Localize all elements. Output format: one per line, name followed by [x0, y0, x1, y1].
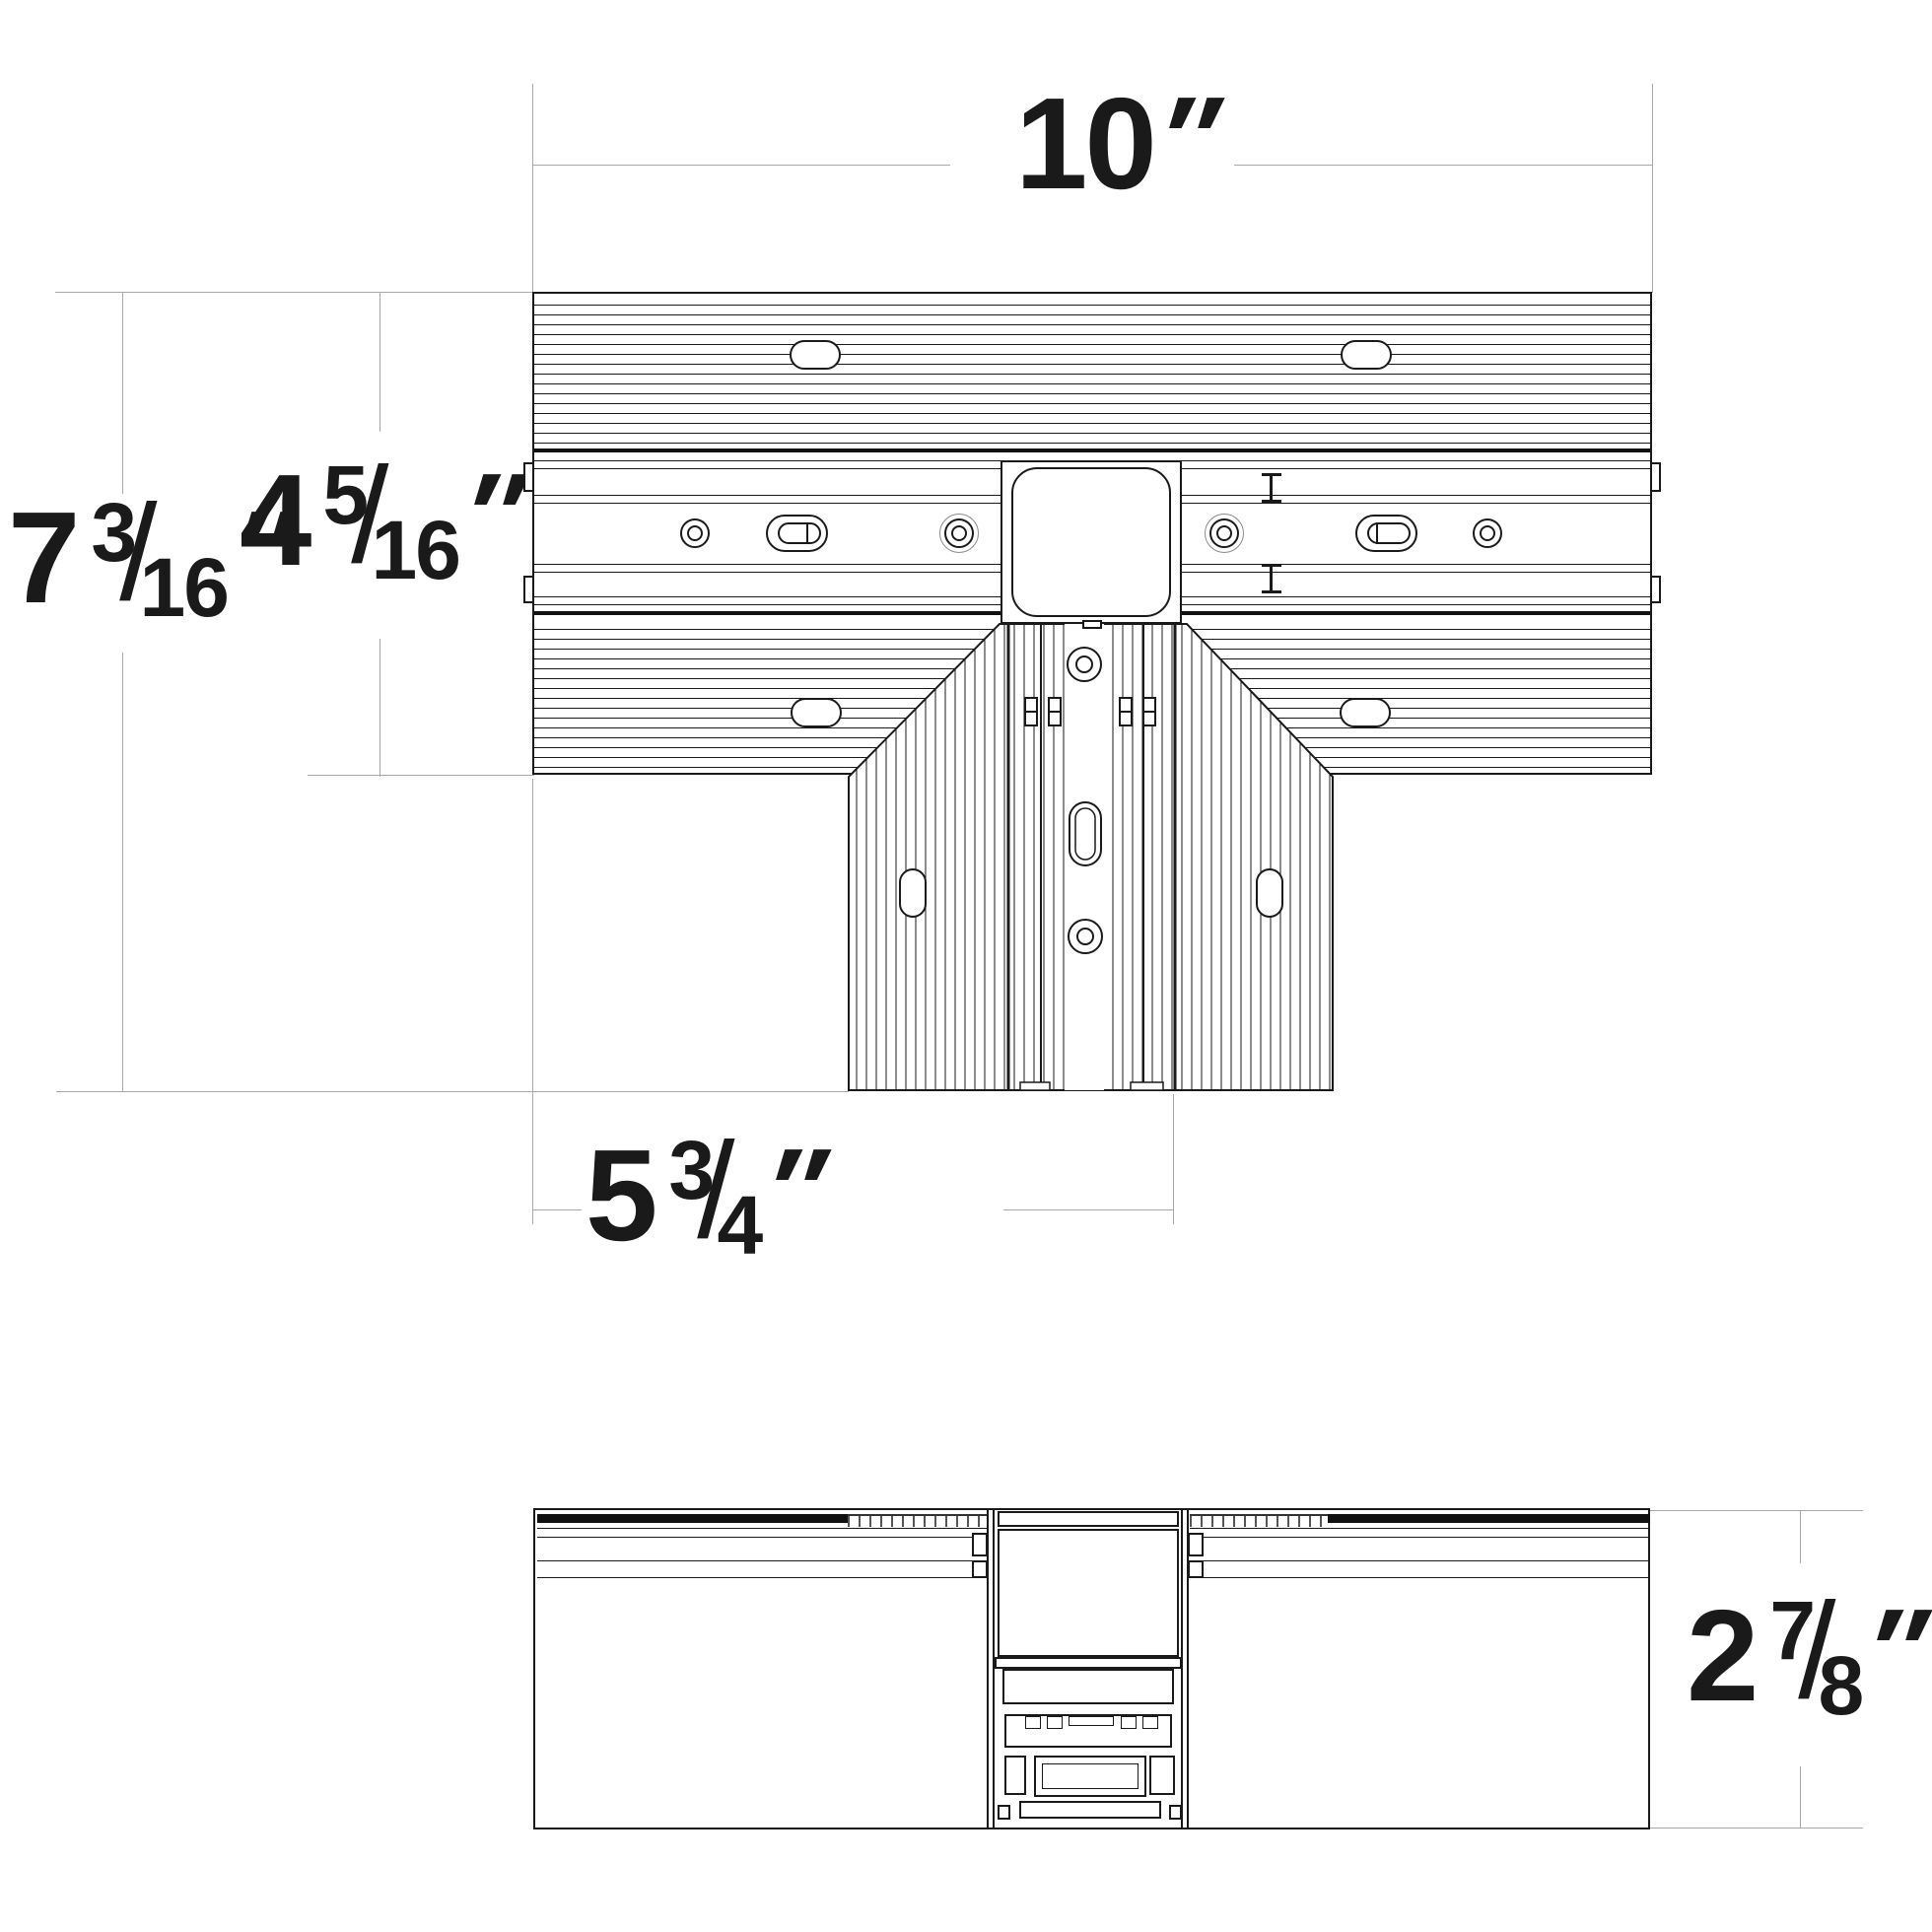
dim-section-fraction: 7 / 8	[1769, 1591, 1862, 1727]
dim-bardepth-ext-top	[55, 292, 532, 293]
section-lower-bracket	[1149, 1756, 1175, 1795]
dim-depth-fraction: 3 / 16	[91, 493, 228, 629]
mounting-slot	[790, 340, 841, 370]
plan-view-leg	[843, 621, 1341, 1096]
dim-leg-fraction: 3 / 4	[668, 1131, 761, 1267]
section-clip-block	[1188, 1560, 1204, 1578]
dim-leg-line-right	[1003, 1209, 1173, 1210]
dim-section-line-upper	[1800, 1510, 1801, 1563]
dim-section-unit: ″	[1859, 1591, 1932, 1711]
mounting-slot	[791, 698, 842, 727]
mounting-slot	[1341, 340, 1392, 370]
section-terminal-cap	[1121, 1716, 1137, 1729]
section-bottom-plate	[1019, 1801, 1161, 1819]
dim-width-unit: ″	[1151, 79, 1227, 199]
junction-box-opening	[1011, 467, 1171, 617]
section-rail-line	[537, 1560, 987, 1561]
junction-box-tab	[1082, 620, 1102, 629]
section-driver-housing	[998, 1529, 1179, 1657]
dim-width-ext-right	[1652, 84, 1653, 293]
section-terminal-cap	[1025, 1716, 1041, 1729]
leg-center-slot-inner	[1075, 808, 1095, 860]
leg-bottom-notch	[1020, 1082, 1050, 1090]
adjustment-slot-inner	[1367, 522, 1411, 544]
dim-bardepth-line-lower	[379, 639, 380, 777]
dim-section-whole: 2	[1687, 1591, 1756, 1721]
bar-band-divider-upper	[534, 448, 1650, 452]
section-clip-block	[972, 1560, 988, 1578]
section-top-black-strip	[1328, 1514, 1650, 1523]
dim-bardepth-fraction: 5 / 16	[322, 455, 459, 591]
section-tooth-strip	[848, 1514, 987, 1527]
dim-depth-label: 7 3 / 16 ″	[8, 493, 290, 629]
section-rail-line	[537, 1528, 987, 1529]
dim-width-line-right	[1234, 165, 1652, 166]
section-top-black-strip	[537, 1514, 848, 1523]
dim-bardepth-line-upper	[379, 292, 380, 432]
section-tooth-strip	[1190, 1514, 1328, 1527]
bar-right-edge-tab	[1650, 576, 1661, 603]
bar-right-edge-tab	[1650, 462, 1661, 492]
section-mid-module	[1002, 1669, 1174, 1704]
dim-depth-line-lower	[122, 653, 123, 1092]
adjustment-slot-divider	[1376, 522, 1378, 544]
leg-bolt-hole-inner	[1076, 656, 1092, 672]
section-rail-line	[537, 1577, 987, 1578]
section-rail-line	[1190, 1560, 1650, 1561]
dim-width-ext-left	[532, 84, 533, 293]
section-bottom-foot	[1169, 1805, 1182, 1820]
dim-section-line-lower	[1800, 1766, 1801, 1828]
dim-bardepth-ext-bottom	[308, 775, 534, 776]
dim-leg-ext-left	[532, 779, 533, 1224]
section-clip-block	[1188, 1533, 1204, 1556]
fastener-hole-inner	[687, 525, 703, 541]
leg-side-slot	[900, 869, 926, 917]
bar-left-edge-tab	[523, 462, 534, 492]
bar-left-edge-tab	[523, 576, 534, 603]
bar-top-band-hatching	[534, 296, 1650, 446]
section-box-wall-left	[987, 1508, 995, 1829]
adjustment-slot-inner	[778, 522, 821, 544]
dim-leg-label: 5 3 / 4 ″	[586, 1131, 824, 1267]
section-rail-line	[1190, 1537, 1650, 1538]
dim-bardepth-unit: ″	[456, 455, 532, 576]
section-clip-block	[972, 1533, 988, 1556]
dim-section-label: 2 7 / 8 ″	[1687, 1591, 1925, 1727]
section-lower-bracket	[1004, 1756, 1026, 1795]
spring-clip	[1262, 473, 1281, 503]
fastener-hole-inner	[951, 525, 967, 541]
section-terminal-cap	[1047, 1716, 1063, 1729]
dim-width-label: 10 ″	[1015, 79, 1216, 209]
leg-bottom-notch	[1131, 1082, 1163, 1090]
leg-side-slot	[1257, 869, 1282, 917]
dim-leg-whole: 5	[586, 1131, 655, 1261]
dim-section-ext-bottom	[1650, 1828, 1863, 1828]
spring-clip	[1262, 564, 1281, 593]
dim-leg-line-left	[532, 1209, 582, 1210]
fastener-hole-inner	[1216, 525, 1232, 541]
dim-depth-ext-bottom	[56, 1091, 849, 1092]
section-rail-line	[1190, 1528, 1650, 1529]
section-rail-line	[537, 1537, 987, 1538]
adjustment-slot-divider	[806, 522, 808, 544]
section-box-wall-right	[1181, 1508, 1189, 1829]
dim-leg-ext-right	[1173, 1094, 1174, 1224]
section-terminal-bar	[1069, 1716, 1114, 1726]
dim-width-value: 10	[1015, 79, 1154, 209]
section-box-top-flange	[998, 1511, 1179, 1527]
section-lower-module-detail	[1042, 1763, 1138, 1789]
dim-section-ext-top	[1650, 1510, 1863, 1511]
fastener-hole-inner	[1480, 525, 1495, 541]
mounting-slot	[1340, 698, 1391, 727]
dim-depth-line-upper	[122, 292, 123, 494]
section-rail-line	[1190, 1577, 1650, 1578]
section-bottom-foot	[998, 1805, 1010, 1820]
dim-depth-whole: 7	[8, 493, 77, 623]
dim-width-line-left	[532, 165, 950, 166]
section-driver-flange	[995, 1657, 1182, 1669]
section-terminal-cap	[1142, 1716, 1158, 1729]
drawing-canvas: 10 ″ 4 5 / 16 ″ 7 3 / 16 ″ 5 3 / 4	[0, 0, 1932, 1932]
leg-bolt-hole-inner	[1077, 929, 1093, 944]
dim-depth-unit: ″	[225, 493, 301, 613]
dim-leg-unit: ″	[758, 1131, 834, 1251]
